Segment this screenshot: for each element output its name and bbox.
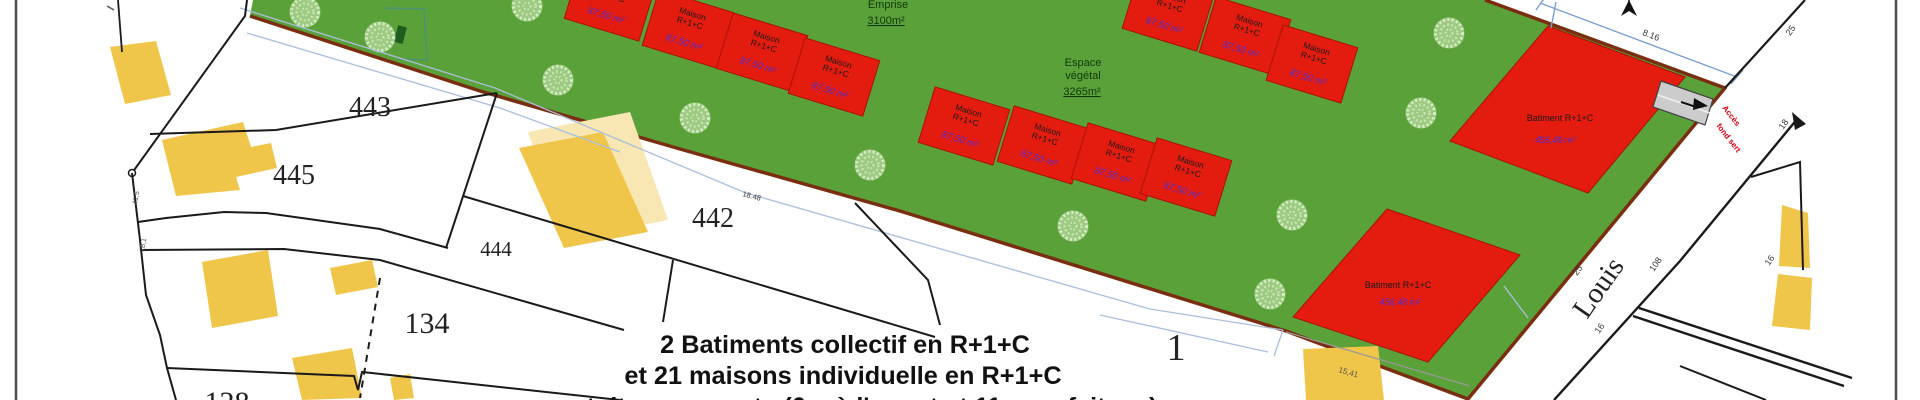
svg-text:456,48 m²: 456,48 m² (1535, 135, 1577, 145)
svg-text:445: 445 (273, 160, 315, 191)
svg-text:Espace: Espace (1065, 57, 1102, 69)
svg-text:444: 444 (480, 237, 512, 261)
svg-text:Batiment R+1+C: Batiment R+1+C (1365, 280, 1432, 290)
svg-text:toiture en pente (6m à l'egout: toiture en pente (6m à l'egout et 11m au… (586, 393, 1157, 400)
svg-text:456,48 m²: 456,48 m² (1380, 297, 1422, 307)
svg-text:442: 442 (692, 203, 734, 234)
svg-text:Emprise: Emprise (868, 0, 908, 11)
svg-text:et 21 maisons individuelle en: et 21 maisons individuelle en R+1+C (624, 362, 1061, 390)
svg-text:végétal: végétal (1065, 70, 1100, 82)
svg-text:3100m²: 3100m² (867, 15, 905, 27)
svg-text:128: 128 (205, 386, 250, 400)
svg-text:2 Batiments collectif en R+1+: 2 Batiments collectif en R+1+C (660, 331, 1030, 359)
svg-text:1: 1 (1167, 327, 1186, 369)
svg-text:134: 134 (405, 307, 450, 340)
svg-text:443: 443 (349, 92, 391, 123)
svg-text:Batiment R+1+C: Batiment R+1+C (1527, 113, 1594, 123)
svg-text:3265m²: 3265m² (1063, 86, 1101, 98)
